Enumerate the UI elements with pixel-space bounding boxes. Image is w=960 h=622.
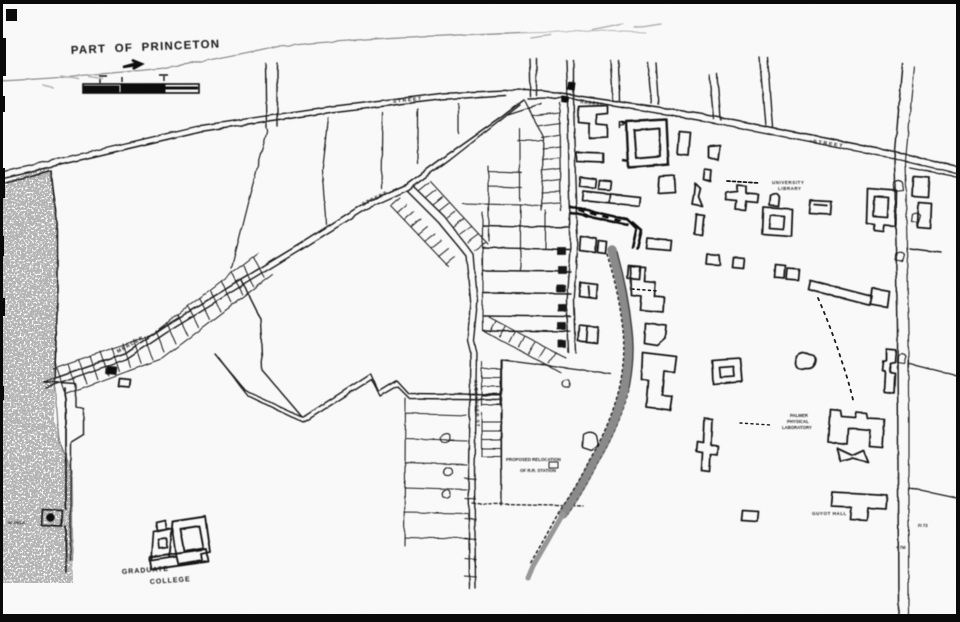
- svg-text:LIBRARY: LIBRARY: [778, 186, 802, 191]
- svg-text:UNIVERSITY: UNIVERSITY: [772, 180, 804, 185]
- svg-text:P: P: [618, 119, 625, 131]
- svg-text:PALMER: PALMER: [790, 413, 809, 418]
- svg-text:OF R.R. STATION: OF R.R. STATION: [520, 468, 556, 473]
- svg-text:+ 7M: + 7M: [896, 545, 906, 550]
- svg-text:PROPOSED RELOCATION: PROPOSED RELOCATION: [506, 457, 561, 462]
- svg-text:W. FIELD: W. FIELD: [8, 520, 25, 525]
- svg-text:PHYSICAL: PHYSICAL: [787, 419, 809, 424]
- svg-text:LABORATORY: LABORATORY: [782, 425, 812, 430]
- svg-text:FI 73: FI 73: [918, 523, 928, 528]
- svg-text:GUYOT HALL: GUYOT HALL: [812, 511, 847, 516]
